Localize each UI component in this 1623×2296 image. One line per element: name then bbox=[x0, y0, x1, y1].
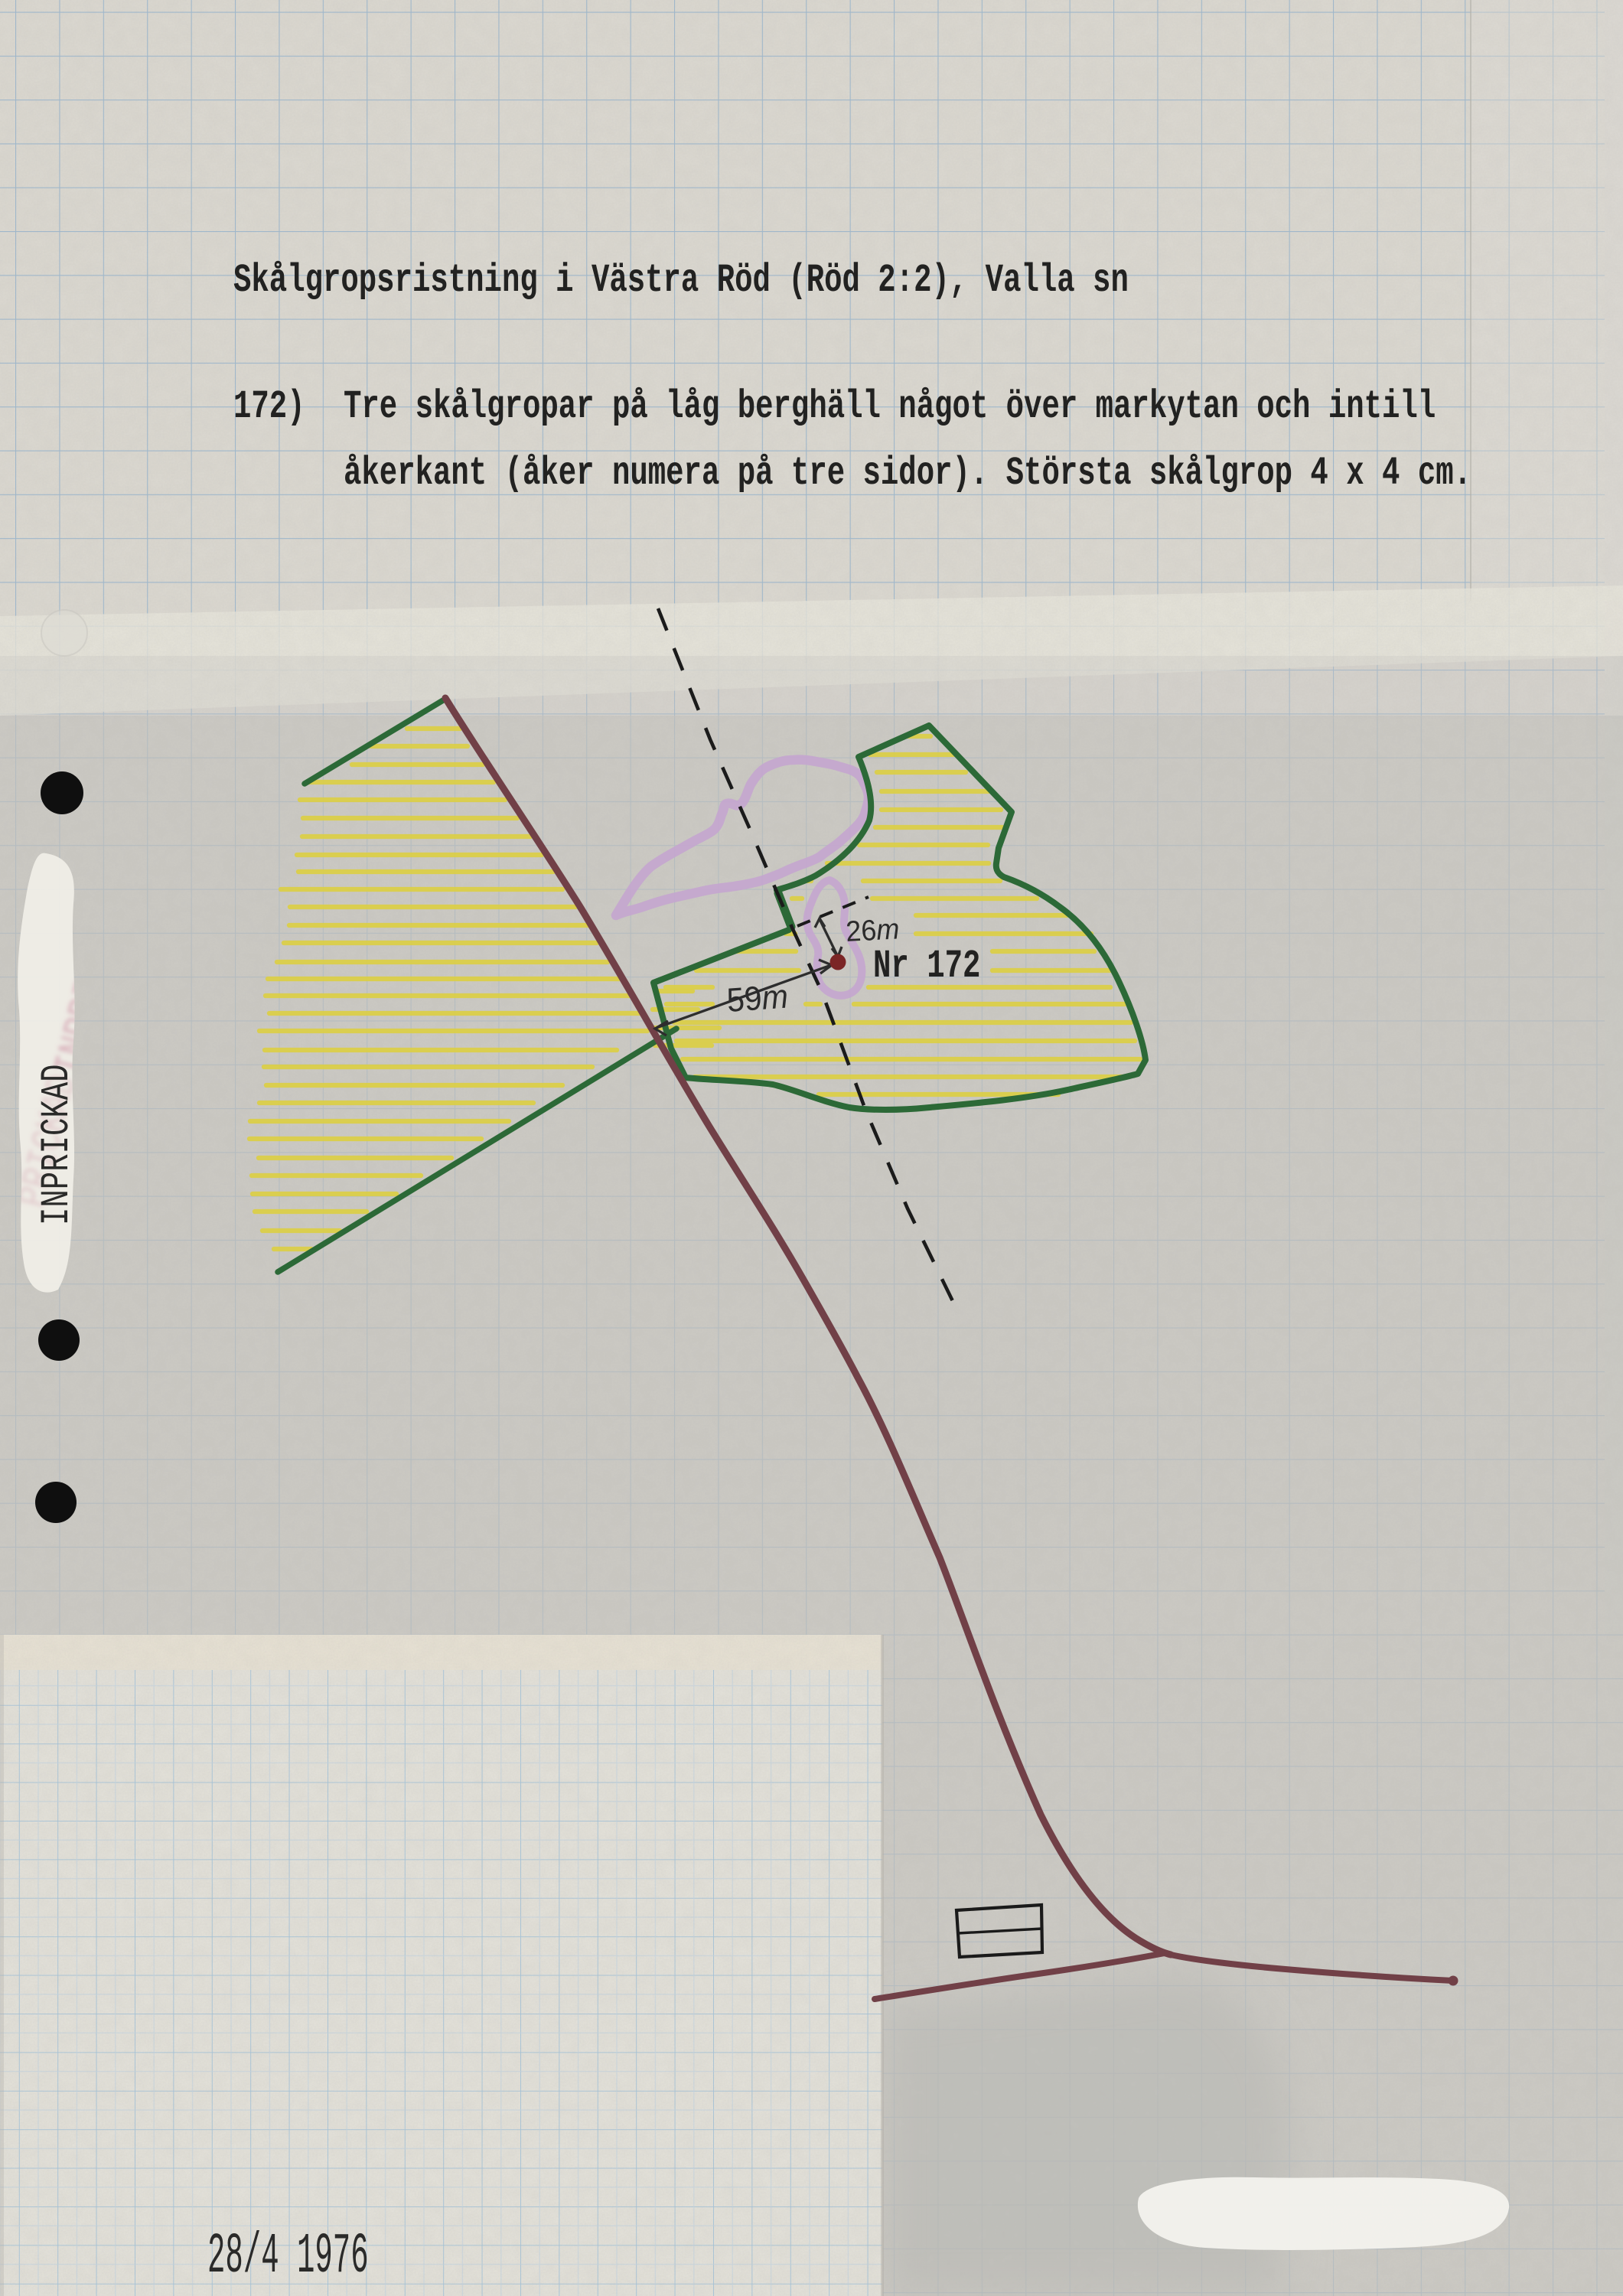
svg-text:åkerkant (åker numera på tre s: åkerkant (åker numera på tre sidor). Stö… bbox=[344, 451, 1471, 496]
svg-text:INPRICKAD: INPRICKAD bbox=[34, 1064, 80, 1225]
svg-text:28/4 1976: 28/4 1976 bbox=[207, 2225, 369, 2289]
svg-text:Skålgropsristning i Västra Röd: Skålgropsristning i Västra Röd (Röd 2:2)… bbox=[233, 258, 1129, 303]
svg-text:Tre skålgropar på låg berghäll: Tre skålgropar på låg berghäll något öve… bbox=[344, 384, 1436, 429]
svg-text:172): 172) bbox=[233, 384, 305, 429]
svg-text:Nr 172: Nr 172 bbox=[873, 944, 980, 989]
svg-text:59m: 59m bbox=[725, 978, 789, 1019]
